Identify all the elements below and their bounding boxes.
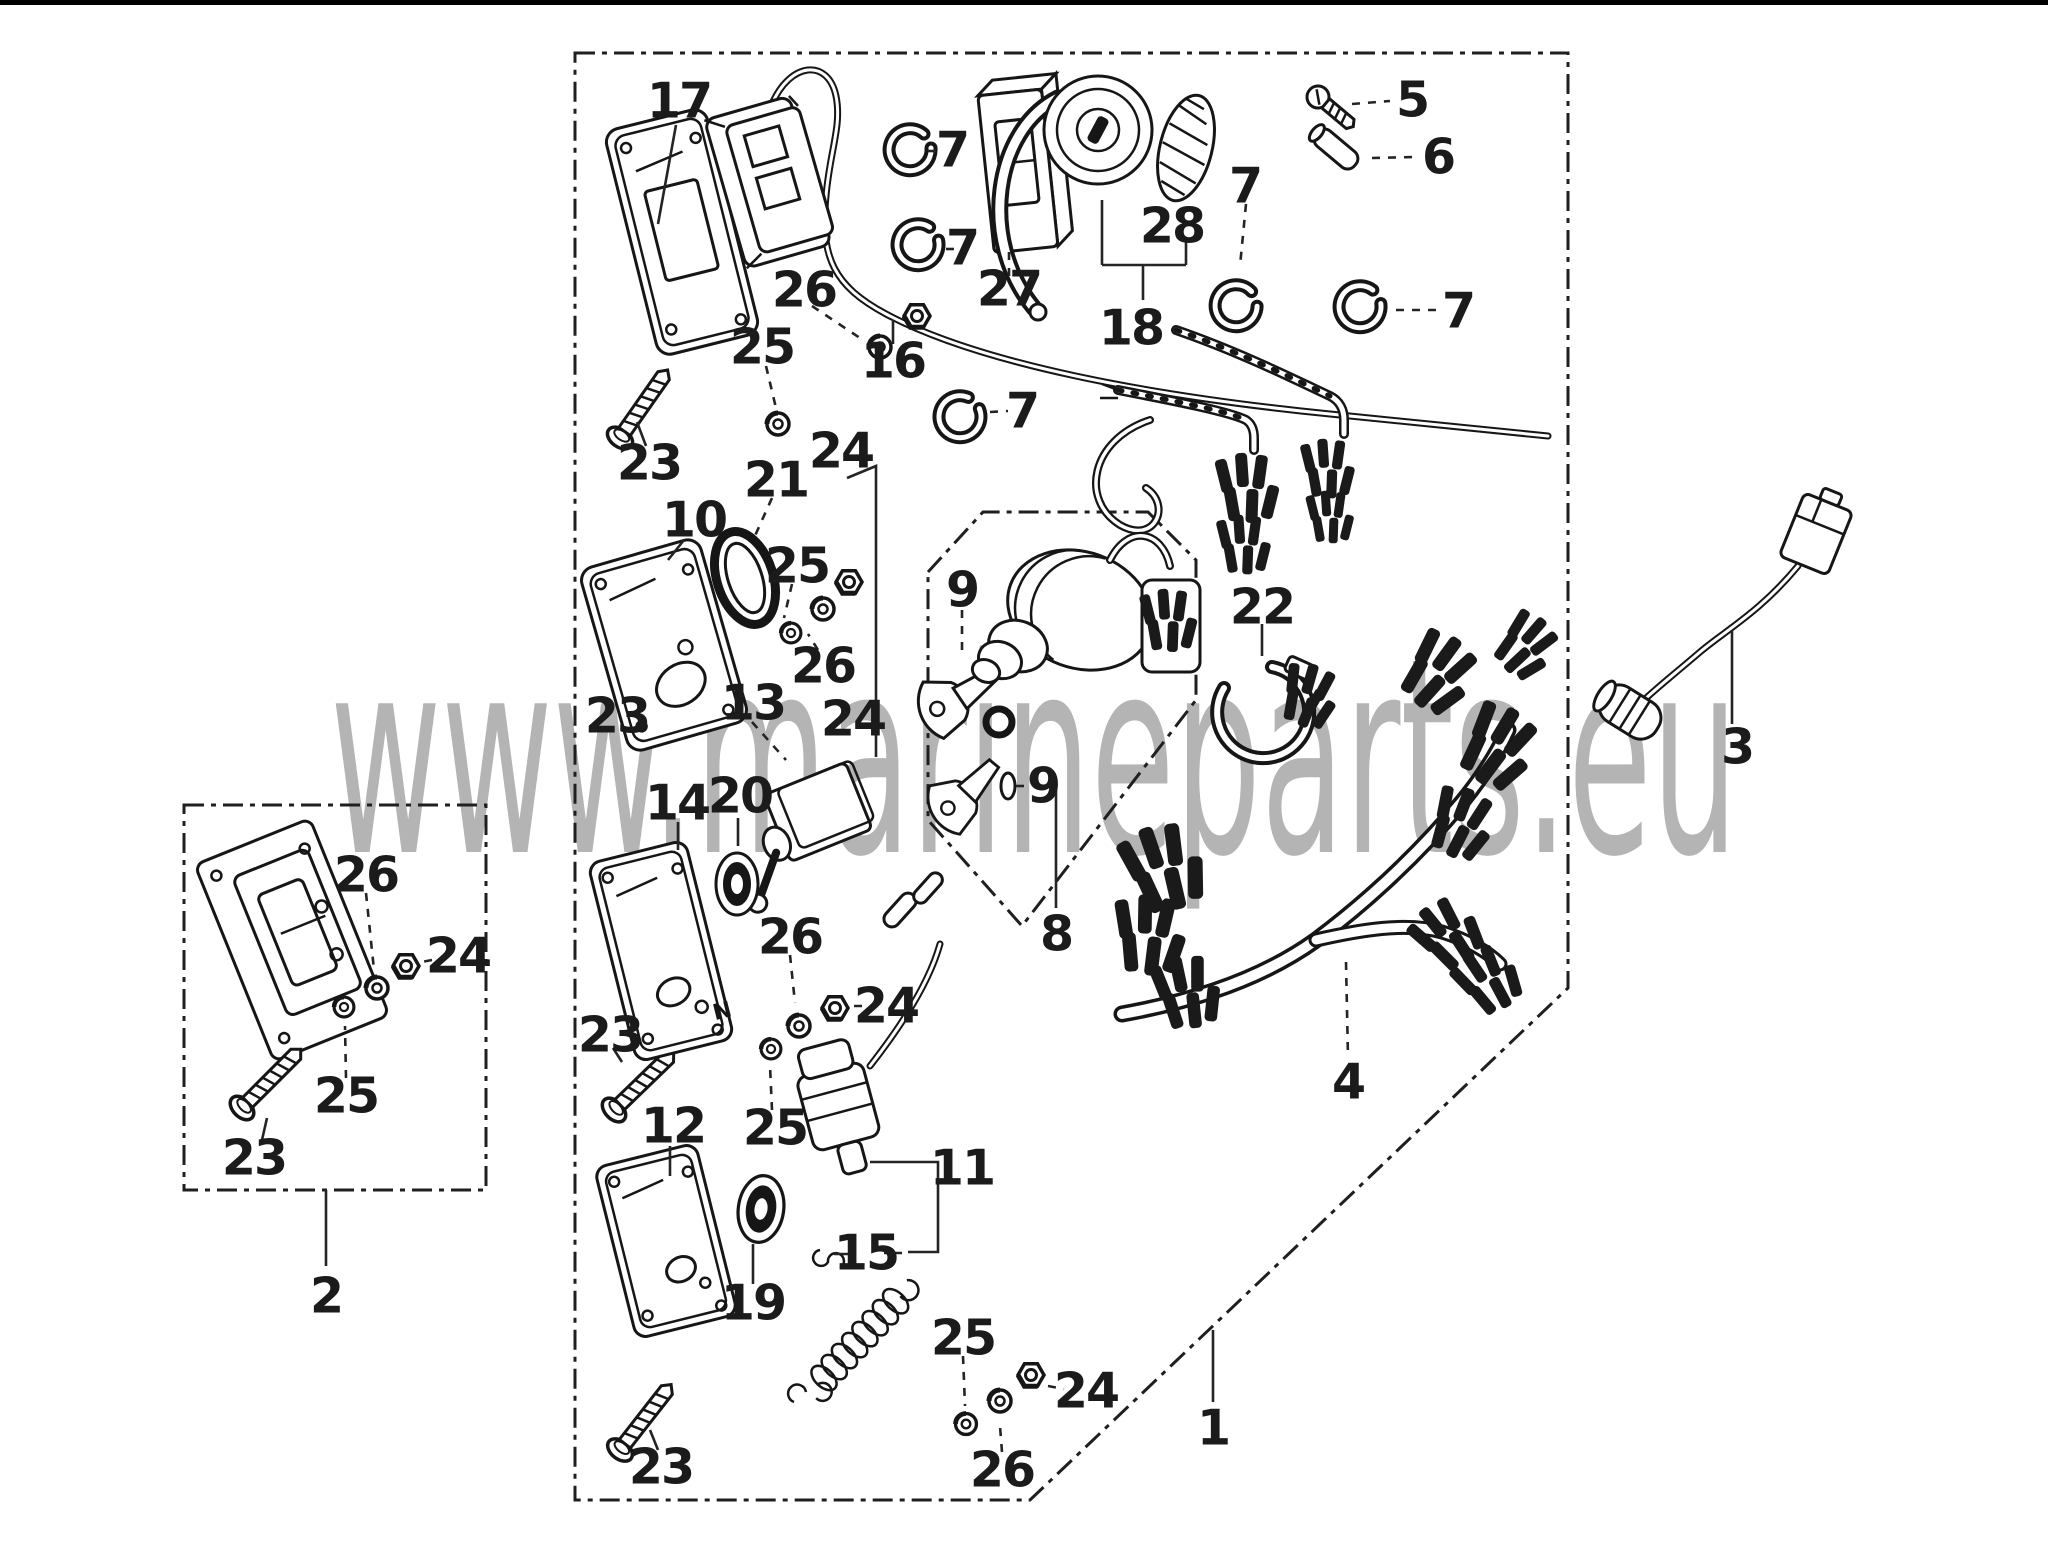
part-callout-23: 23 bbox=[222, 1130, 286, 1187]
part-20-grommet bbox=[716, 853, 758, 915]
part-callout-25: 25 bbox=[765, 538, 829, 595]
parts-diagram-svg: www.marineparts.eu bbox=[0, 0, 2048, 1550]
part-callout-20: 20 bbox=[708, 768, 772, 825]
parts-diagram-page: www.marineparts.eu bbox=[0, 0, 2048, 1550]
part-callout-28: 28 bbox=[1140, 198, 1204, 255]
part-callout-3: 3 bbox=[1721, 719, 1753, 776]
part-callout-5: 5 bbox=[1396, 72, 1428, 129]
part-callout-25: 25 bbox=[730, 319, 794, 376]
part-callout-14: 14 bbox=[645, 775, 709, 832]
part-callout-25: 25 bbox=[931, 1310, 995, 1367]
part-callout-10: 10 bbox=[662, 492, 726, 549]
part-callout-7: 7 bbox=[1229, 158, 1261, 215]
part-callout-24: 24 bbox=[821, 691, 885, 748]
part-callout-24: 24 bbox=[809, 423, 873, 480]
part-callout-8: 8 bbox=[1040, 906, 1072, 963]
part-callout-4: 4 bbox=[1332, 1054, 1364, 1111]
part-callout-19: 19 bbox=[721, 1275, 785, 1332]
part-callout-17: 17 bbox=[647, 73, 711, 130]
part-callout-7: 7 bbox=[1442, 283, 1474, 340]
part-callout-7: 7 bbox=[946, 220, 978, 277]
part-callout-13: 13 bbox=[721, 675, 785, 732]
part-callout-24: 24 bbox=[854, 978, 918, 1035]
part-callout-23: 23 bbox=[617, 435, 681, 492]
part-callout-26: 26 bbox=[970, 1442, 1034, 1499]
top-edge-bar bbox=[0, 0, 2048, 5]
part-callout-21: 21 bbox=[744, 452, 808, 509]
part-callout-23: 23 bbox=[578, 1007, 642, 1064]
part-callout-18: 18 bbox=[1099, 300, 1163, 357]
part-callout-11: 11 bbox=[930, 1140, 994, 1197]
part-callout-1: 1 bbox=[1197, 1400, 1229, 1457]
part-callout-7: 7 bbox=[1006, 383, 1038, 440]
part-callout-26: 26 bbox=[334, 847, 398, 904]
part-callout-25: 25 bbox=[743, 1100, 807, 1157]
part-callout-26: 26 bbox=[791, 638, 855, 695]
part-callout-6: 6 bbox=[1422, 129, 1454, 186]
part-callout-27: 27 bbox=[977, 261, 1041, 318]
part-callout-23: 23 bbox=[585, 688, 649, 745]
part-callout-22: 22 bbox=[1230, 579, 1294, 636]
part-callout-9: 9 bbox=[1027, 758, 1059, 815]
part-callout-23: 23 bbox=[629, 1439, 693, 1496]
part-callout-24: 24 bbox=[1054, 1363, 1118, 1420]
part-callout-25: 25 bbox=[314, 1068, 378, 1125]
part-callout-7: 7 bbox=[936, 122, 968, 179]
part-callout-16: 16 bbox=[861, 333, 925, 390]
part-callout-24: 24 bbox=[426, 928, 490, 985]
part-callout-2: 2 bbox=[310, 1268, 342, 1325]
part-callout-12: 12 bbox=[641, 1098, 705, 1155]
part-callout-26: 26 bbox=[758, 909, 822, 966]
part-callout-9: 9 bbox=[946, 562, 978, 619]
part-callout-26: 26 bbox=[772, 262, 836, 319]
part-callout-15: 15 bbox=[834, 1225, 898, 1282]
